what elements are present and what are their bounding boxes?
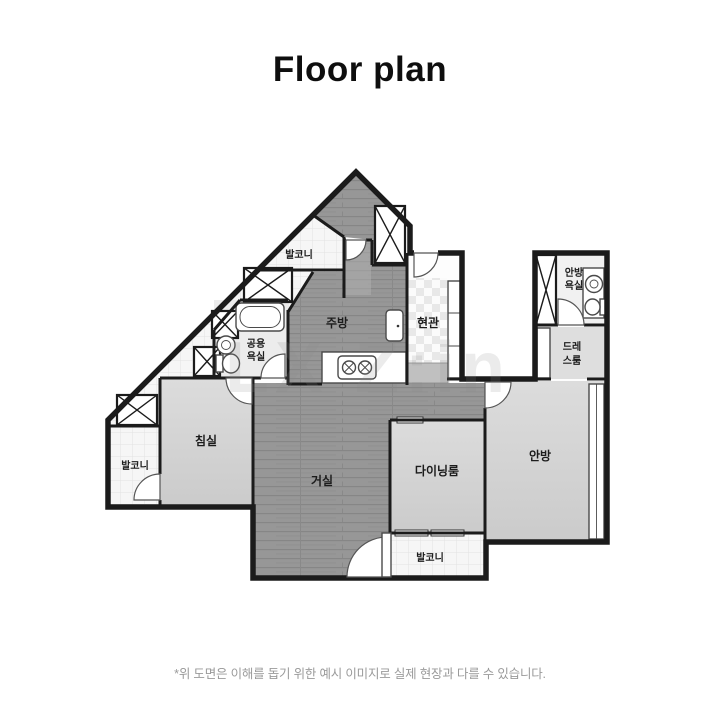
room-label-master-bath-1: 안방 [565,266,584,279]
floor-plan-page: Floor plan [0,0,720,720]
room-label-balcony-left: 발코니 [121,459,149,472]
disclaimer-text: *위 도면은 이해를 돕기 위한 예시 이미지로 실제 현장과 다를 수 있습니… [0,663,720,682]
bathtub-icon [236,303,284,331]
shaft-x-icon [117,395,157,425]
room-label-balcony-bottom: 발코니 [416,551,444,564]
room-label-dressroom-2: 스룸 [563,355,581,367]
room-label-master-bath-2: 욕실 [565,279,583,292]
dressroom-closet [537,328,550,378]
shaft-x-icon [536,255,556,325]
room-label-dining: 다이닝룸 [415,463,459,478]
room-label-balcony-top: 발코니 [285,248,313,261]
room-label-master-bedroom: 안방 [529,448,551,463]
brand-watermark: LX Z:in [225,328,511,408]
room-label-bedroom: 침실 [195,433,217,448]
master-bedroom-closet [589,384,604,539]
toilet-icon [585,299,606,315]
sink-icon [586,276,603,293]
room-label-living: 거실 [311,473,333,488]
floor-plan-diagram: 발코니 주방 현관 안방 욕실 공용 욕실 드레 스룸 침실 발코니 거실 다이… [0,0,720,720]
room-label-dressroom-1: 드레 [563,340,581,353]
